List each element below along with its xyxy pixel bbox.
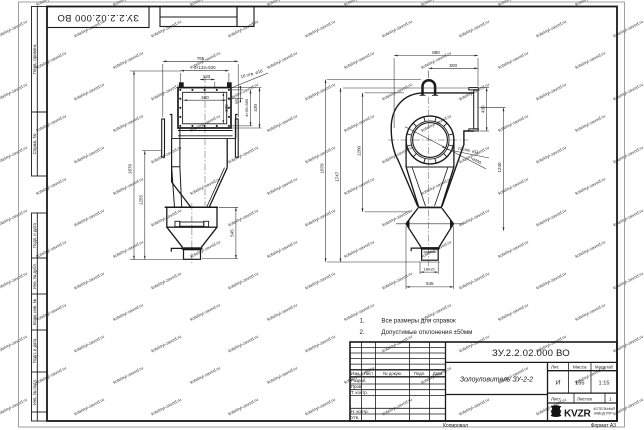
svg-text:1240: 1240 (497, 162, 502, 173)
svg-text:Н. контр.: Н. контр. (351, 409, 369, 414)
svg-text:Копировал: Копировал (443, 423, 468, 429)
svg-text:4×133=530: 4×133=530 (194, 65, 216, 70)
svg-text:Формат А3: Формат А3 (591, 423, 616, 429)
svg-text:430: 430 (253, 104, 258, 112)
svg-text:1: 1 (609, 397, 612, 402)
svg-text:765: 765 (197, 56, 205, 61)
svg-text:Инв. № подл.: Инв. № подл. (32, 379, 37, 405)
svg-text:500: 500 (450, 63, 458, 68)
svg-text:KVZR: KVZR (564, 409, 591, 420)
svg-text:1:15: 1:15 (599, 381, 610, 387)
svg-text:180±5: 180±5 (424, 266, 436, 271)
svg-text:Лист: Лист (364, 371, 373, 376)
svg-text:Пров.: Пров. (351, 384, 362, 389)
svg-text:ЗАВОД РЛР: ЗАВОД РЛР (594, 412, 614, 416)
svg-text:Масса: Масса (573, 365, 587, 370)
svg-text:133: 133 (203, 74, 211, 79)
svg-text:Золоуловитель ЗУ-2-2: Золоуловитель ЗУ-2-2 (460, 377, 533, 384)
svg-text:1870: 1870 (128, 163, 133, 174)
svg-text:Лит.: Лит. (551, 365, 560, 370)
svg-text:95: 95 (234, 99, 239, 104)
svg-text:Взам. инв. №: Взам. инв. № (32, 299, 37, 325)
svg-text:Справ. №: Справ. № (32, 134, 37, 155)
svg-text:Все размеры для справок: Все размеры для справок (381, 318, 456, 325)
svg-text:Допустимые отклонения ±50мм: Допустимые отклонения ±50мм (381, 329, 472, 336)
svg-text:Масштаб: Масштаб (595, 365, 614, 370)
svg-text:Дата: Дата (433, 371, 443, 376)
svg-text:1255: 1255 (139, 194, 144, 205)
svg-text:155: 155 (575, 381, 584, 387)
svg-text:Листов: Листов (577, 397, 592, 402)
svg-text:Т. контр.: Т. контр. (351, 390, 368, 395)
svg-text:430: 430 (480, 105, 485, 113)
svg-text:4×95=380: 4×95=380 (244, 98, 249, 117)
svg-text:ЗУ.2.2.02.000 ВО: ЗУ.2.2.02.000 ВО (57, 12, 139, 23)
svg-text:Подп. и дата: Подп. и дата (32, 338, 37, 363)
svg-text:Подп. и дата: Подп. и дата (32, 222, 37, 247)
svg-text:Инв. № дубл.: Инв. № дубл. (32, 263, 37, 289)
svg-text:330: 330 (224, 104, 229, 112)
svg-text:1876: 1876 (319, 163, 324, 174)
svg-text:Изм.: Изм. (351, 371, 360, 376)
svg-text:Утв.: Утв. (351, 415, 359, 420)
svg-text:Перв. примен.: Перв. примен. (32, 44, 37, 75)
svg-text:545: 545 (230, 229, 235, 237)
svg-text:Лист: Лист (551, 397, 562, 402)
svg-text:1200: 1200 (356, 145, 361, 156)
svg-text:880: 880 (432, 50, 440, 55)
svg-text:№ докум.: № докум. (383, 371, 402, 376)
svg-text:1.: 1. (360, 318, 365, 325)
svg-text:ЗУ.2.2.02.000 ВО: ЗУ.2.2.02.000 ВО (492, 348, 570, 359)
svg-text:КОТЕЛЬНЫЙ: КОТЕЛЬНЫЙ (594, 407, 616, 411)
svg-text:2.: 2. (360, 329, 365, 336)
svg-text:Разраб.: Разраб. (351, 378, 366, 383)
svg-text:Подп.: Подп. (414, 371, 425, 376)
svg-text:480: 480 (201, 95, 209, 100)
svg-text:1747: 1747 (334, 171, 339, 182)
svg-text:545: 545 (426, 281, 434, 286)
svg-text:И: И (556, 380, 561, 387)
